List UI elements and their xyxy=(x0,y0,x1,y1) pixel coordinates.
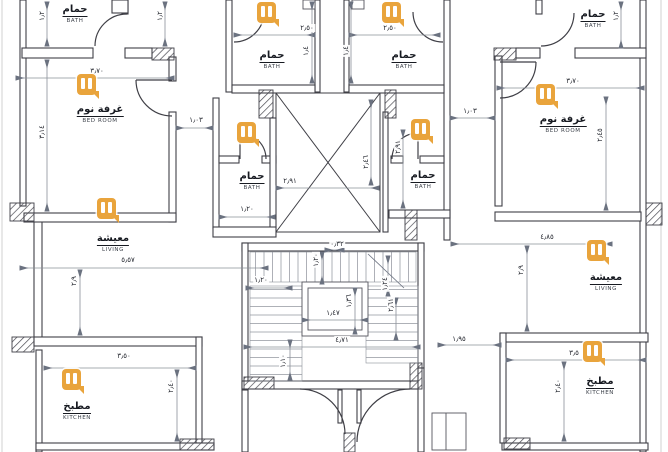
dimension-label: ١٫٠٣ xyxy=(462,107,478,115)
room-label-bath-top-center-right: حمام BATH xyxy=(392,43,417,71)
dimension-label: ٣٫٧٠ xyxy=(565,77,581,85)
room-label-bath-mid-left: حمام BATH xyxy=(240,164,265,192)
room-name-english: KITCHEN xyxy=(63,415,91,422)
room-name-arabic: حمام xyxy=(260,50,285,63)
dimension-label: ١٫٢٠ xyxy=(253,276,269,284)
watermark-pause-bubble-icon xyxy=(583,341,602,362)
watermark-pause-bubble-icon xyxy=(77,74,96,95)
room-name-english: BATH xyxy=(260,64,285,71)
room-name-english: BATH xyxy=(392,64,417,71)
room-name-english: BATH xyxy=(411,184,436,191)
dimension-label: ١٫١٠ xyxy=(279,353,287,369)
dimension-label: ٢٫٤٦ xyxy=(362,154,370,170)
dimension-label: ١٫٢ xyxy=(38,10,46,22)
room-name-arabic: حمام xyxy=(63,4,88,17)
room-label-bath-top-left: حمام BATH xyxy=(63,0,88,25)
room-name-english: KITCHEN xyxy=(586,390,614,397)
dimension-label: ٢٫٩١ xyxy=(282,177,298,185)
dimension-label: ٥٫٥٧ xyxy=(120,256,136,264)
room-name-arabic: مطبخ xyxy=(63,401,90,414)
room-name-english: BATH xyxy=(240,185,265,192)
room-name-arabic: معيشة xyxy=(590,272,622,285)
dimension-label: ١٫٤٧ xyxy=(325,309,341,317)
watermark-pause-bubble-icon xyxy=(257,2,276,23)
dimension-label: ٢٫٩١ xyxy=(394,139,402,155)
watermark-pause-bubble-icon xyxy=(536,84,555,105)
room-name-english: BATH xyxy=(63,18,88,25)
dimension-label: ١٫٢٤ xyxy=(381,276,389,292)
dimension-label: ١٫٢٠ xyxy=(312,252,320,268)
room-label-kitchen-right: مطبخ KITCHEN xyxy=(586,369,614,397)
dimension-label: ٣٫٥٠ xyxy=(116,352,132,360)
dimension-label: ٠٫٣٢ xyxy=(329,240,345,248)
dimension-label: ٢٫٥٠ xyxy=(299,24,315,32)
room-name-english: BED ROOM xyxy=(540,128,587,135)
dimension-label: ٢٫٤٠ xyxy=(167,378,175,394)
dimension-label: ٢٫٥٠ xyxy=(382,24,398,32)
room-name-english: LIVING xyxy=(97,247,129,254)
room-label-living-left: معيشة LIVING xyxy=(97,226,129,254)
room-name-english: LIVING xyxy=(590,286,622,293)
watermark-pause-bubble-icon xyxy=(97,198,116,219)
room-label-bedroom-right: غرفة نوم BED ROOM xyxy=(540,107,587,135)
room-name-english: BATH xyxy=(581,23,606,30)
watermark-pause-bubble-icon xyxy=(62,369,81,390)
room-label-bath-mid-right: حمام BATH xyxy=(411,163,436,191)
watermark-pause-bubble-icon xyxy=(587,240,606,261)
dimension-label: ٣٫١٤ xyxy=(38,124,46,140)
dimension-label: ١٫٤ xyxy=(302,45,310,57)
floor-plan: حمام BATH حمام BATH حمام BATH حمام BATH … xyxy=(0,0,668,452)
dimension-label: ٢٫٩ xyxy=(70,275,78,287)
dimension-label: ١٫٢ xyxy=(156,10,164,22)
dimension-label: ٣٫٥ xyxy=(568,349,580,357)
room-name-arabic: حمام xyxy=(392,50,417,63)
dimension-label: ١٫٢٠ xyxy=(239,205,255,213)
room-label-bedroom-left: غرفة نوم BED ROOM xyxy=(77,97,124,125)
dimension-label: ٤٫٧١ xyxy=(334,336,350,344)
watermark-pause-bubble-icon xyxy=(237,122,256,143)
watermark-pause-bubble-icon xyxy=(382,2,401,23)
room-name-arabic: غرفة نوم xyxy=(77,104,124,117)
dimension-label: ٢٫٩ xyxy=(517,264,525,276)
dimension-label: ٢٫٤٥ xyxy=(596,127,604,143)
dimension-label: ٢٫٤٠ xyxy=(554,378,562,394)
room-label-bath-top-right: حمام BATH xyxy=(581,2,606,30)
dimension-label: ٤٫٨٥ xyxy=(539,233,555,241)
watermark-pause-bubble-icon xyxy=(411,119,430,140)
room-name-arabic: حمام xyxy=(240,171,265,184)
dimension-label: ١٫٢ xyxy=(612,10,620,22)
dimension-label: ١٫٠٣ xyxy=(188,116,204,124)
room-name-arabic: غرفة نوم xyxy=(540,114,587,127)
room-label-kitchen-left: مطبخ KITCHEN xyxy=(63,394,91,422)
room-name-arabic: حمام xyxy=(411,170,436,183)
dimension-label: ١٫٩٥ xyxy=(451,335,467,343)
room-name-arabic: مطبخ xyxy=(586,376,613,389)
dimension-label: ١٫٤ xyxy=(342,45,350,57)
room-name-arabic: حمام xyxy=(581,9,606,22)
room-label-bath-top-center-left: حمام BATH xyxy=(260,43,285,71)
dimension-label: ٢٫٦١ xyxy=(387,297,395,313)
room-name-arabic: معيشة xyxy=(97,233,129,246)
dimension-label: ١٫٣٦ xyxy=(345,293,353,309)
room-label-living-right: معيشة LIVING xyxy=(590,265,622,293)
room-name-english: BED ROOM xyxy=(77,118,124,125)
